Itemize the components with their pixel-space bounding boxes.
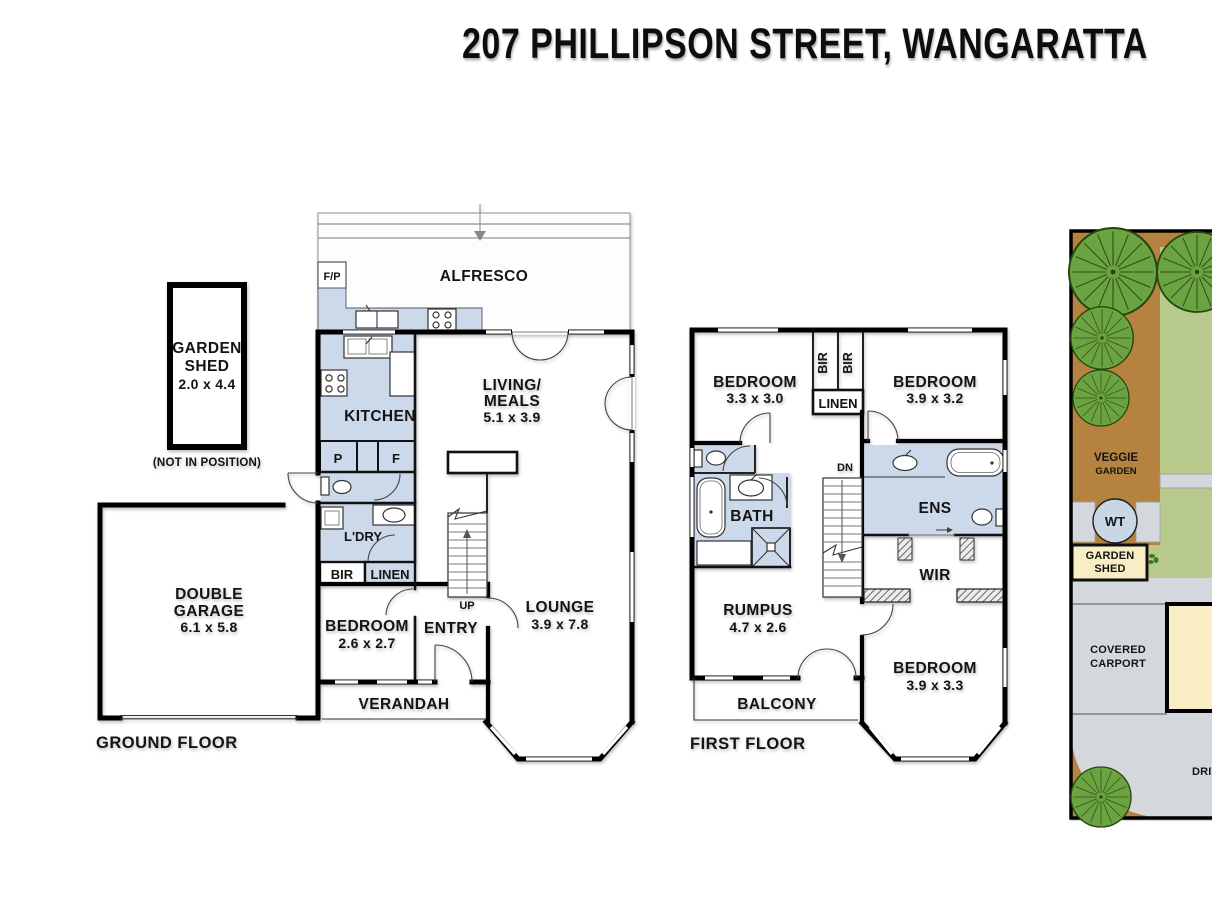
carport-label-1: COVERED (1090, 644, 1146, 656)
fridge-label: F (392, 451, 400, 466)
bedroom1-dims: 3.3 x 3.0 (726, 390, 783, 406)
veggie-garden-label-2: GARDEN (1095, 466, 1136, 477)
water-tank: WT (1093, 499, 1137, 543)
first-floor-caption: FIRST FLOOR (690, 735, 806, 753)
ens-bathtub-icon (947, 449, 1004, 476)
ground-floor-plan: GARDEN SHED 2.0 x 4.4 (NOT IN POSITION) … (90, 200, 670, 775)
ens-toilet-icon (972, 509, 1004, 526)
living-meals-label-1: LIVING/ (483, 377, 542, 394)
pantry-label: P (334, 451, 343, 466)
rumpus-dims: 4.7 x 2.6 (729, 619, 786, 635)
site-garden-shed: GARDEN SHED (1072, 545, 1147, 580)
entry-label: ENTRY (424, 620, 478, 637)
first-floor-plan: BATH BIR BIR LINEN (680, 315, 1020, 775)
veggie-garden-label-1: VEGGIE (1094, 452, 1138, 464)
garden-shed-outline: GARDEN SHED 2.0 x 4.4 (NOT IN POSITION) (153, 285, 261, 469)
bedroom-g-label: BEDROOM (325, 618, 409, 635)
tree-icon (1071, 767, 1131, 827)
lounge-dims: 3.9 x 7.8 (531, 616, 588, 632)
wir-label: WIR (919, 567, 950, 584)
ens-label: ENS (918, 500, 951, 517)
kitchen-cooktop-icon (321, 370, 347, 396)
tree-icon (1071, 307, 1133, 369)
paving-pad-left (1071, 502, 1095, 542)
paving-pad-right (1136, 502, 1160, 542)
linen2-label: LINEN (819, 396, 858, 411)
garden-shed-dims: 2.0 x 4.4 (178, 376, 235, 392)
stairs-dn-label: DN (837, 462, 853, 474)
house-footprint (1167, 604, 1212, 711)
site-shed-label-1: GARDEN (1086, 550, 1135, 562)
water-tank-label: WT (1105, 514, 1125, 529)
rumpus-label: RUMPUS (723, 602, 793, 619)
bir-left-label: BIR (816, 352, 830, 374)
bedroom3-label: BEDROOM (893, 660, 977, 677)
fireplace: F/P (318, 262, 346, 289)
bath-label: BATH (730, 508, 774, 525)
stair-landing (448, 452, 517, 473)
lounge-label: LOUNGE (526, 599, 595, 616)
laundry-basin-icon (383, 508, 405, 522)
bath-bench (697, 541, 751, 565)
bir-linen-row: BIR LINEN (320, 562, 415, 584)
tree-icon (1069, 228, 1157, 316)
bedroom1-label: BEDROOM (713, 374, 797, 391)
stairs-down: DN (823, 462, 862, 597)
outdoor-cooktop-icon (428, 309, 456, 330)
wc-toilet-icon (333, 481, 351, 494)
kitchen-sink-icon (344, 336, 392, 358)
alfresco-label: ALFRESCO (440, 268, 528, 285)
site-plan: VEGGIE GARDEN WT GARDEN SHED COVERED CAR… (1066, 225, 1212, 837)
bir-right-label: BIR (841, 352, 855, 374)
garage-label-1: DOUBLE (175, 586, 243, 603)
laundry-trough-icon (321, 507, 343, 529)
site-shed-label-2: SHED (1094, 563, 1125, 575)
bedroom2-label: BEDROOM (893, 374, 977, 391)
stairs-up: UP (448, 452, 517, 612)
linen-label: LINEN (371, 567, 410, 582)
bedroom3-dims: 3.9 x 3.3 (906, 677, 963, 693)
wc-cistern-icon (321, 477, 329, 495)
living-meals-label-2: MEALS (484, 393, 540, 410)
fireplace-label: F/P (323, 271, 340, 283)
bir-linen-block: BIR BIR LINEN (813, 330, 863, 414)
garden-path (1160, 474, 1212, 488)
balcony-label: BALCONY (737, 696, 817, 713)
kitchen-label: KITCHEN (344, 408, 416, 425)
bedroom-g-dims: 2.6 x 2.7 (338, 635, 395, 651)
page-title: 207 PHILLIPSON STREET, WANGARATTA (462, 20, 1182, 69)
shower-icon (752, 528, 790, 567)
bir-label: BIR (331, 567, 354, 582)
garage-label-2: GARAGE (174, 603, 244, 620)
floorplan-page: 207 PHILLIPSON STREET, WANGARATTA GARDEN… (0, 0, 1212, 909)
carport-label-2: CARPORT (1090, 658, 1146, 670)
bedroom2-dims: 3.9 x 3.2 (906, 390, 963, 406)
ground-floor-caption: GROUND FLOOR (96, 734, 238, 752)
living-meals-dims: 5.1 x 3.9 (483, 409, 540, 425)
stairs-up-label: UP (459, 600, 474, 612)
garden-shed-note: (NOT IN POSITION) (153, 457, 261, 469)
kitchen-bench (390, 352, 415, 396)
bathtub-icon (697, 478, 725, 537)
garden-shed-label-2: SHED (185, 358, 230, 375)
bath-vanity-icon (730, 474, 772, 500)
garden-shed-label-1: GARDEN (172, 340, 242, 357)
garage-dims: 6.1 x 5.8 (180, 619, 237, 635)
driveway-label: DRIVEWAY (1192, 766, 1212, 778)
tree-icon (1073, 370, 1129, 426)
verandah-label: VERANDAH (358, 696, 449, 713)
